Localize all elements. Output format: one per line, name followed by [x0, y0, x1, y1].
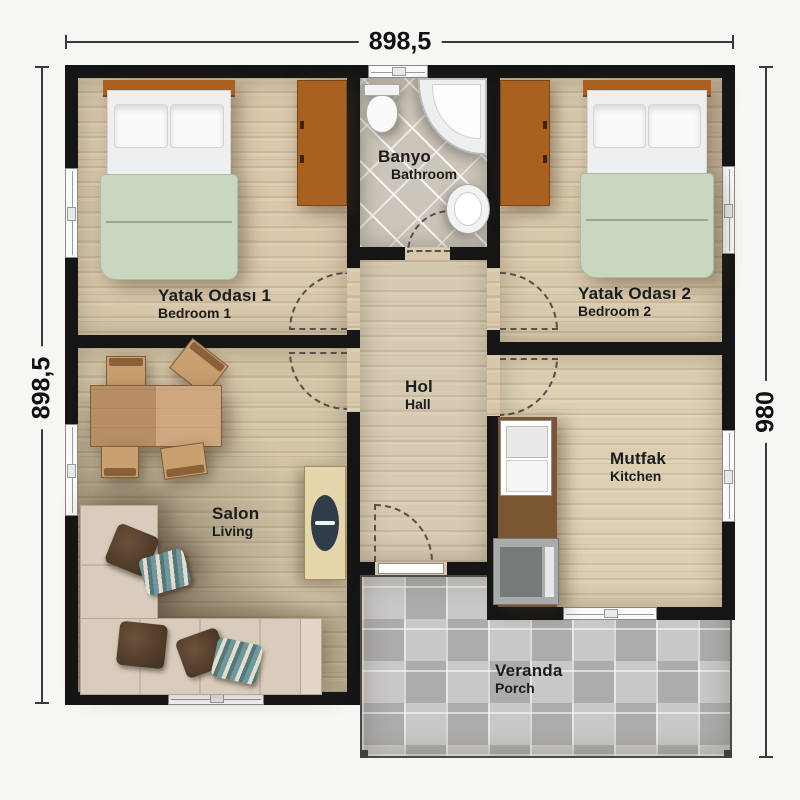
- door-leaf-kitchen: [500, 358, 558, 360]
- room-label-bathroom: Banyo Bathroom: [378, 148, 457, 182]
- wall-hall-bottom-b: [447, 562, 487, 575]
- room-name-tr: Banyo: [378, 148, 457, 167]
- bed-pillow: [648, 104, 701, 148]
- kitchen-sink-unit: [500, 420, 552, 496]
- door-leaf-entrance: [374, 504, 376, 562]
- dimension-label-right: 980: [752, 381, 781, 443]
- room-name-tr: Hol: [405, 378, 433, 397]
- bed-pillow: [593, 104, 646, 148]
- room-name-tr: Yatak Odası 1: [158, 287, 271, 306]
- wall-hall-right-a: [487, 330, 500, 355]
- tv-icon: [311, 495, 339, 551]
- room-name-en: Bathroom: [391, 167, 457, 182]
- sink-basin: [454, 192, 482, 226]
- bed-icon: [103, 80, 235, 280]
- bed-icon: [583, 80, 711, 278]
- room-name-en: Bedroom 2: [578, 304, 691, 319]
- room-label-bedroom2: Yatak Odası 2 Bedroom 2: [578, 285, 691, 319]
- window-kitchen-bottom: [563, 607, 657, 620]
- door-opening-bedroom2: [487, 268, 500, 330]
- porch-corner-post: [360, 750, 368, 758]
- bathtub-basin: [432, 84, 481, 139]
- wall-bath-bottom-b: [450, 247, 500, 260]
- chair-icon: [160, 442, 208, 480]
- room-label-living: Salon Living: [212, 505, 259, 539]
- door-opening-bedroom1: [347, 268, 360, 330]
- room-name-en: Hall: [405, 397, 433, 412]
- wardrobe-icon: [500, 80, 550, 206]
- window-bathroom-top: [368, 65, 428, 78]
- door-leaf-bedroom1: [289, 328, 347, 330]
- dimension-tick: [35, 66, 49, 68]
- room-label-porch: Veranda Porch: [495, 662, 563, 696]
- window-bedroom2-right: [722, 166, 735, 254]
- dimension-tick: [759, 66, 773, 68]
- room-label-hall: Hol Hall: [405, 378, 433, 412]
- room-name-tr: Salon: [212, 505, 259, 524]
- window-bedroom1-left: [65, 168, 78, 258]
- wall-bath-right: [487, 65, 500, 268]
- chair-icon: [101, 446, 139, 478]
- door-leaf-living: [289, 352, 347, 354]
- door-leaf-bedroom2: [500, 328, 558, 330]
- room-name-en: Kitchen: [610, 469, 666, 484]
- room-label-bedroom1: Yatak Odası 1 Bedroom 1: [158, 287, 271, 321]
- wardrobe-handle: [543, 155, 547, 163]
- stove-icon: [493, 538, 559, 605]
- dimension-tick: [65, 35, 67, 49]
- dimension-tick: [759, 756, 773, 758]
- toilet-icon: [364, 84, 400, 134]
- wardrobe-icon: [297, 80, 347, 206]
- wardrobe-handle: [300, 155, 304, 163]
- dimension-tick: [732, 35, 734, 49]
- room-label-kitchen: Mutfak Kitchen: [610, 450, 666, 484]
- dimension-label-top: 898,5: [359, 28, 442, 57]
- blanket-fold: [586, 219, 707, 221]
- bed-blanket: [580, 173, 714, 278]
- room-name-en: Bedroom 1: [158, 306, 271, 321]
- window-kitchen-right: [722, 430, 735, 522]
- porch-corner-post: [724, 750, 732, 758]
- room-name-en: Living: [212, 524, 259, 539]
- dimension-label-left: 898,5: [28, 347, 57, 430]
- bed-blanket: [100, 174, 238, 280]
- oven-door: [545, 547, 554, 597]
- door-opening-living: [347, 348, 360, 412]
- wall-divider-left: [65, 335, 360, 348]
- sink-drainboard: [506, 460, 548, 492]
- bed-pillow: [114, 104, 169, 148]
- toilet-bowl: [366, 95, 398, 133]
- wall-hall-bottom-a: [360, 562, 375, 575]
- room-name-en: Porch: [495, 681, 563, 696]
- room-name-tr: Veranda: [495, 662, 563, 681]
- sink-icon: [446, 184, 490, 234]
- room-name-tr: Yatak Odası 2: [578, 285, 691, 304]
- tv-stand-icon: [304, 466, 346, 580]
- stove-top: [500, 547, 542, 597]
- sofa-armrest: [300, 618, 322, 695]
- floor-plan-canvas: Yatak Odası 1 Bedroom 1 Yatak Odası 2 Be…: [0, 0, 800, 800]
- wardrobe-handle: [543, 121, 547, 129]
- window-living-left: [65, 424, 78, 516]
- wall-bath-left: [347, 65, 360, 268]
- wardrobe-handle: [300, 121, 304, 129]
- sofa-icon: [80, 505, 322, 695]
- entrance-threshold: [378, 563, 444, 574]
- bed-pillow: [170, 104, 225, 148]
- sink-bowl: [506, 426, 548, 458]
- door-opening-kitchen: [487, 355, 500, 416]
- room-name-tr: Mutfak: [610, 450, 666, 469]
- blanket-fold: [106, 221, 231, 223]
- dining-table-icon: [90, 385, 222, 447]
- kitchen-counter-icon: [498, 417, 557, 607]
- wall-bath-bottom-a: [360, 247, 405, 260]
- wall-left: [65, 65, 78, 705]
- pillow-icon: [116, 621, 168, 670]
- dimension-tick: [35, 702, 49, 704]
- wall-hall-left-b: [347, 412, 360, 705]
- door-leaf-bathroom: [407, 250, 450, 252]
- wall-divider-right: [487, 342, 735, 355]
- wall-hall-left-a: [347, 330, 360, 348]
